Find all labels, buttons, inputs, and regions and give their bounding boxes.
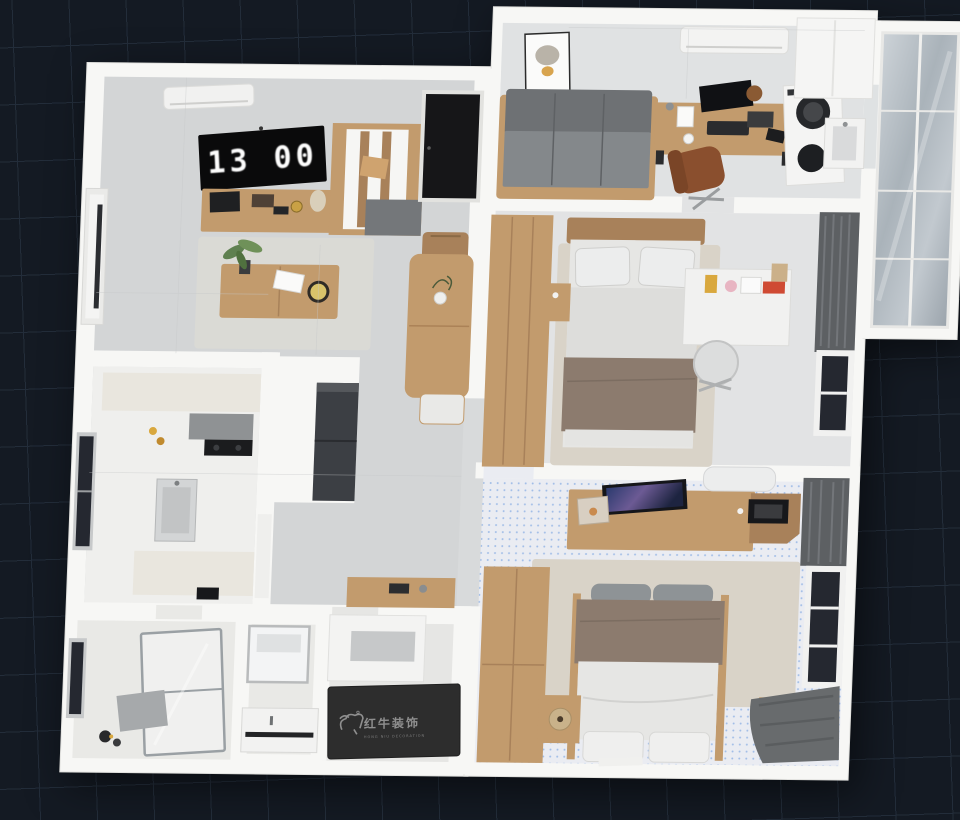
window-mullion [874, 259, 950, 260]
desk-bedroom1[interactable] [683, 263, 792, 346]
wall-living-kitchen [77, 350, 278, 368]
sink-basin [161, 487, 191, 533]
bed-foot [565, 429, 694, 446]
desk-leg [656, 150, 665, 164]
window-bedroom1[interactable] [813, 350, 854, 436]
bath-panel [116, 690, 167, 732]
counter-appliance [197, 587, 219, 599]
hall-bench-coat-rack[interactable] [329, 123, 425, 236]
upper-cabinets[interactable] [102, 373, 262, 413]
window-shower-room[interactable] [66, 638, 87, 718]
table-seam [409, 326, 469, 327]
vanity-edge [245, 732, 313, 738]
tv-console[interactable] [201, 189, 333, 233]
window-bedroom2[interactable] [802, 566, 847, 688]
gold-bowl [291, 201, 302, 212]
cup [683, 134, 693, 144]
lower-counter[interactable] [133, 551, 255, 596]
sideboard-item [389, 583, 409, 593]
vanity-counter[interactable] [241, 708, 319, 753]
set-top-box [210, 191, 240, 212]
faucet [270, 716, 273, 725]
pillow [575, 247, 630, 287]
speaker-grille [754, 504, 783, 518]
bed-bedroom2[interactable] [566, 583, 729, 767]
pillow [583, 731, 644, 762]
floor-mat-watermark: 红牛装饰 HONG NIU DECORATION [328, 684, 460, 759]
papers [677, 107, 694, 127]
cabinet-top [350, 631, 415, 662]
wardrobe-bedroom1[interactable] [482, 215, 554, 467]
balcony-glazing[interactable] [871, 33, 958, 328]
red-box [763, 281, 785, 293]
air-conditioner-bedroom2[interactable] [703, 467, 776, 492]
window-mullion [877, 191, 953, 192]
window-glass [808, 572, 840, 682]
sideboard-bottom[interactable] [346, 577, 455, 608]
window-vanity-room[interactable] [247, 626, 309, 683]
window-reflection [257, 634, 302, 652]
canvas-background: 13 00 [0, 0, 960, 820]
air-conditioner-living[interactable] [164, 84, 254, 110]
book-stack [747, 111, 774, 127]
air-conditioner-study[interactable] [680, 27, 789, 54]
blanket [574, 599, 725, 665]
duvet [566, 287, 699, 360]
vase [434, 292, 446, 304]
sofa-seats [503, 131, 651, 188]
dining-chair-bottom[interactable] [419, 394, 464, 424]
nightstand-left-bedroom2[interactable] [537, 695, 581, 743]
book [705, 275, 718, 293]
remote [273, 206, 288, 214]
hanging-bag [360, 156, 389, 180]
sofa-backrest [505, 89, 653, 136]
window-mullion [880, 111, 956, 112]
door-gap-shower [156, 605, 203, 619]
window-living-left[interactable] [81, 188, 108, 324]
bench-cushion [365, 199, 422, 236]
curtain-bedroom1[interactable] [814, 212, 859, 352]
refrigerator[interactable] [312, 383, 359, 501]
watermark-brand: 红牛装饰 [364, 715, 420, 731]
entrance-door[interactable] [418, 90, 484, 203]
foot-mat [599, 757, 643, 766]
kitchen-sink[interactable] [155, 479, 197, 541]
blanket [561, 357, 698, 432]
utility-sink[interactable] [824, 118, 866, 168]
tissue-box [741, 277, 762, 293]
fridge-top [317, 383, 359, 392]
nightstand-bedroom1[interactable] [539, 283, 570, 321]
range-hood[interactable] [189, 413, 254, 440]
file-folders [771, 264, 788, 282]
ac-vent [686, 47, 782, 48]
console-book [252, 194, 275, 207]
sink-basin [832, 126, 857, 160]
laundry-cabinet[interactable] [327, 615, 426, 682]
keyboard[interactable] [707, 121, 750, 135]
sofa[interactable] [496, 89, 658, 201]
cooktop[interactable] [204, 440, 253, 456]
curtain-bedroom2-top[interactable] [800, 478, 849, 566]
wall-art[interactable] [525, 32, 570, 92]
pillow [649, 732, 710, 763]
dining-set[interactable] [403, 232, 474, 425]
floor-plan: 13 00 [0, 0, 960, 820]
